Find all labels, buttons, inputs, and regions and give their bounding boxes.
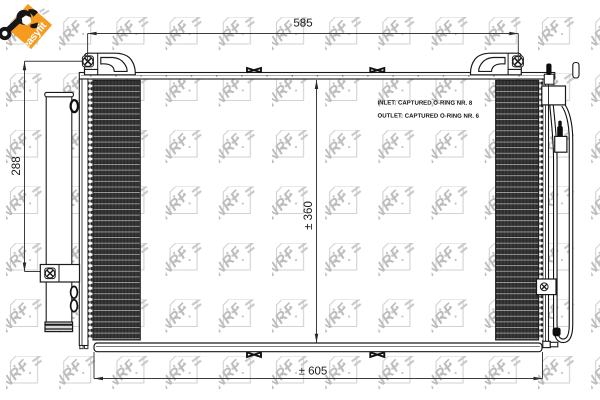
svg-text:288: 288 [11,156,23,175]
svg-text:OUTLET: CAPTURED O-RING NR. 6: OUTLET: CAPTURED O-RING NR. 6 [377,114,479,120]
svg-text:585: 585 [293,17,312,29]
svg-text:INLET: CAPTURED O-RING NR. 8: INLET: CAPTURED O-RING NR. 8 [377,101,472,107]
svg-text:± 360: ± 360 [303,201,315,230]
svg-text:± 605: ± 605 [299,365,328,377]
